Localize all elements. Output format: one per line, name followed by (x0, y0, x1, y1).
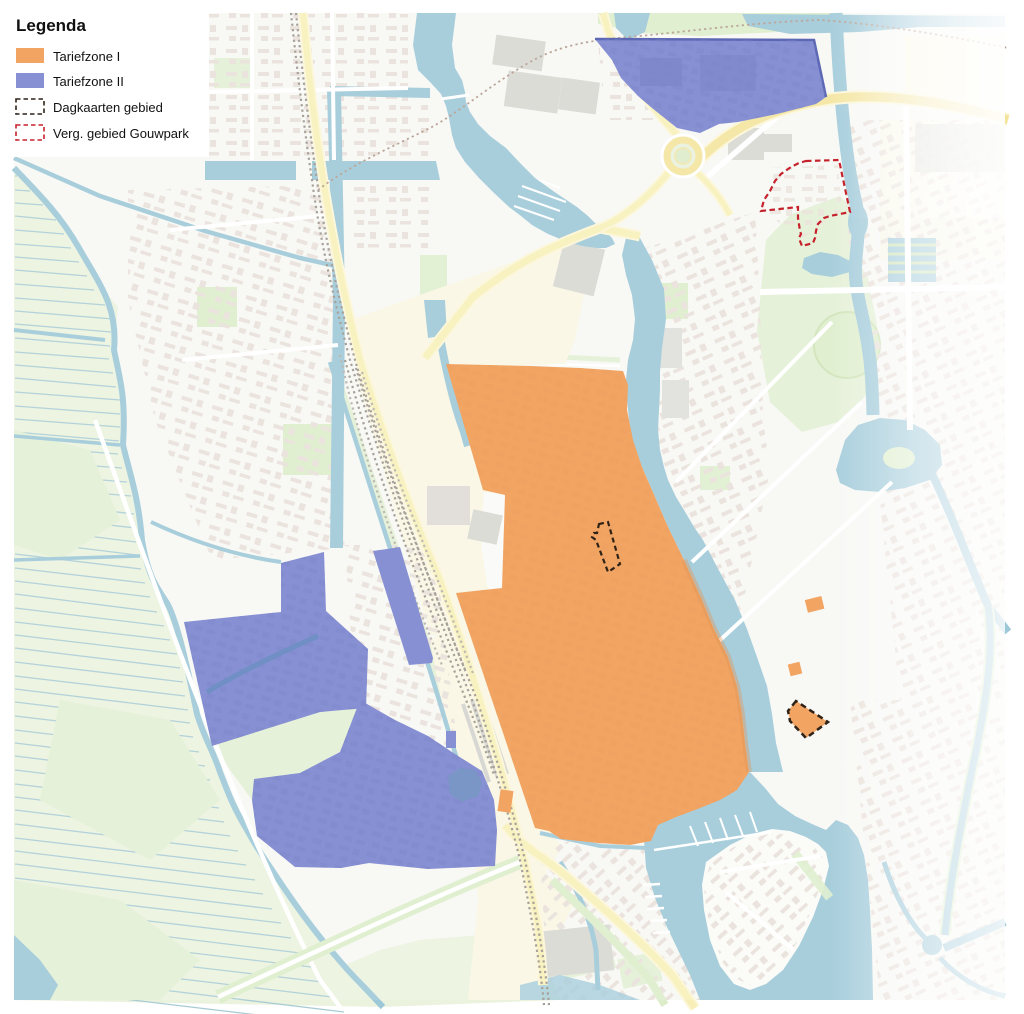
svg-text:Tariefzone I: Tariefzone I (53, 49, 120, 64)
svg-text:Tariefzone II: Tariefzone II (53, 74, 124, 89)
svg-text:Verg. gebied Gouwpark: Verg. gebied Gouwpark (53, 126, 189, 141)
svg-text:Legenda: Legenda (16, 16, 86, 35)
svg-text:Dagkaarten gebied: Dagkaarten gebied (53, 100, 163, 115)
